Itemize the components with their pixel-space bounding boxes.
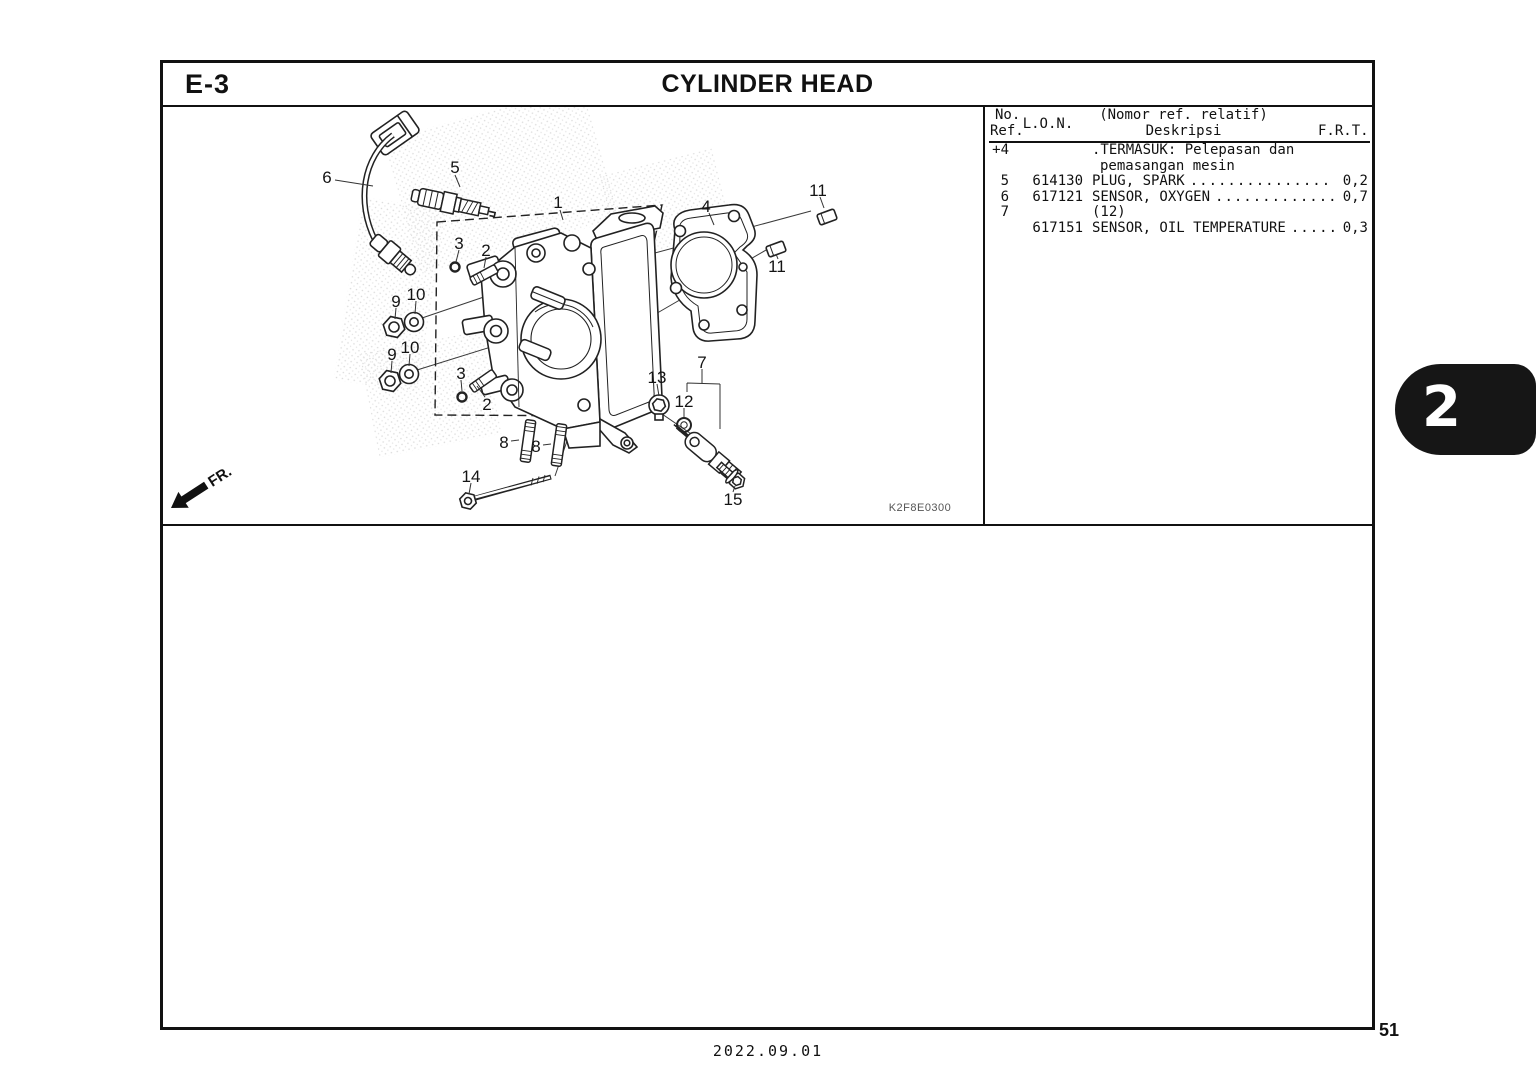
callout-8: 8: [531, 437, 540, 456]
cell-desc: PLUG, SPARK.............................…: [1092, 174, 1334, 190]
dowel-pins: [766, 209, 838, 257]
parts-table-rows: +4.TERMASUK: Pelepasan danpemasangan mes…: [989, 143, 1370, 236]
col-header-lon: L.O.N.: [1011, 115, 1085, 133]
callout-10: 10: [401, 338, 420, 357]
cell-frt: 0,7: [1334, 190, 1370, 206]
parts-table-header: No. Ref. L.O.N. (Nomor ref. relatif) Des…: [989, 108, 1370, 143]
section-code: E-3: [185, 69, 230, 100]
callout-10: 10: [407, 285, 426, 304]
col-header-desc: (Nomor ref. relatif) Deskripsi: [1085, 108, 1318, 139]
cell-ref: [989, 159, 1009, 175]
desc-text: SENSOR, OXYGEN: [1092, 190, 1210, 206]
callout-14: 14: [462, 467, 481, 486]
desc-text: pemasangan mesin: [1092, 159, 1235, 175]
desc-text: SENSOR, OIL TEMPERATURE: [1092, 221, 1286, 237]
cell-frt: [1334, 143, 1370, 159]
cell-lon: [1009, 159, 1083, 175]
callout-11: 11: [768, 257, 786, 276]
callout-2: 2: [481, 241, 490, 260]
cell-lon: 617151: [1009, 221, 1083, 237]
cell-ref: [989, 221, 1009, 237]
cell-lon: [1009, 205, 1083, 221]
callout-7: 7: [697, 353, 706, 372]
desc-text: .TERMASUK: Pelepasan dan: [1092, 143, 1294, 159]
page-title: CYLINDER HEAD: [163, 70, 1372, 99]
table-row: 617151SENSOR, OIL TEMPERATURE...........…: [989, 221, 1370, 237]
cell-frt: [1334, 159, 1370, 175]
parts-table: No. Ref. L.O.N. (Nomor ref. relatif) Des…: [983, 107, 1372, 524]
cell-ref: +4: [989, 143, 1009, 159]
table-row: 6617121SENSOR, OXYGEN...................…: [989, 190, 1370, 206]
col-header-ref: No. Ref.: [989, 108, 1011, 139]
cell-desc: (12): [1092, 205, 1334, 221]
col-header-frt: F.R.T.: [1318, 124, 1370, 140]
callout-9: 9: [391, 292, 400, 311]
cell-frt: 0,2: [1334, 174, 1370, 190]
header-bar: E-3 CYLINDER HEAD: [163, 63, 1372, 107]
callout-3: 3: [456, 364, 465, 383]
cell-lon: 617121: [1009, 190, 1083, 206]
callout-12: 12: [675, 392, 694, 411]
callout-1: 1: [553, 193, 562, 212]
callout-13: 13: [648, 368, 667, 387]
fr-direction-arrow: FR.: [166, 462, 235, 516]
dot-leader: ........................................…: [1210, 190, 1334, 206]
callout-6: 6: [322, 168, 331, 187]
empty-lower-panel: [163, 524, 1372, 1027]
page-number: 51: [1379, 1020, 1399, 1041]
section-index-tab: 2: [1395, 364, 1536, 455]
cell-desc: SENSOR, OXYGEN..........................…: [1092, 190, 1334, 206]
callout-2: 2: [482, 395, 491, 414]
callout-3: 3: [454, 234, 463, 253]
cell-ref: 5: [989, 174, 1009, 190]
cell-lon: 614130: [1009, 174, 1083, 190]
exploded-diagram: K2F8E0300 FR. 12233456788991010111112131…: [163, 107, 983, 524]
callout-15: 15: [724, 490, 743, 509]
cell-ref: 6: [989, 190, 1009, 206]
cell-desc: .TERMASUK: Pelepasan dan: [1092, 143, 1334, 159]
callout-8: 8: [499, 433, 508, 452]
table-row: +4.TERMASUK: Pelepasan dan: [989, 143, 1370, 159]
cell-frt: [1334, 205, 1370, 221]
cell-ref: 7: [989, 205, 1009, 221]
table-row: 7(12): [989, 205, 1370, 221]
cell-lon: [1009, 143, 1083, 159]
cell-desc: pemasangan mesin: [1092, 159, 1334, 175]
callout-5: 5: [450, 158, 459, 177]
exploded-diagram-panel: K2F8E0300 FR. 12233456788991010111112131…: [163, 107, 983, 524]
footer-date: 2022.09.01: [0, 1042, 1536, 1060]
diagram-code: K2F8E0300: [889, 502, 952, 514]
table-row: 5614130PLUG, SPARK......................…: [989, 174, 1370, 190]
dot-leader: ........................................…: [1286, 221, 1334, 237]
callout-9: 9: [387, 345, 396, 364]
cell-desc: SENSOR, OIL TEMPERATURE.................…: [1092, 221, 1334, 237]
catalog-page: { "header": { "code": "E-3", "title": "C…: [0, 0, 1536, 1086]
dot-leader: ........................................…: [1185, 174, 1334, 190]
callout-11: 11: [809, 181, 827, 200]
catalog-sheet: E-3 CYLINDER HEAD: [160, 60, 1375, 1030]
desc-text: (12): [1092, 205, 1126, 221]
studs-long: [520, 420, 567, 467]
fr-label: FR.: [205, 463, 235, 490]
cell-frt: 0,3: [1334, 221, 1370, 237]
section-index-number: 2: [1422, 375, 1461, 440]
desc-text: PLUG, SPARK: [1092, 174, 1185, 190]
table-row: pemasangan mesin: [989, 159, 1370, 175]
callout-4: 4: [701, 197, 710, 216]
